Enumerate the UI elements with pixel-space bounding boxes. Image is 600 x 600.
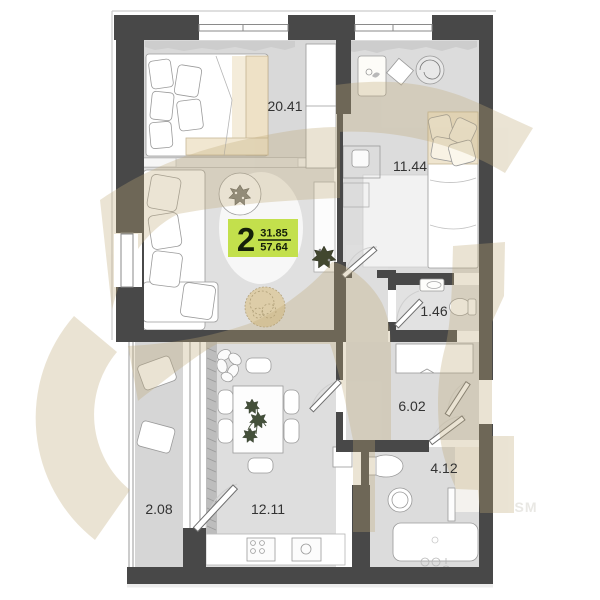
svg-text:6.02: 6.02 bbox=[398, 398, 425, 414]
svg-text:1.46: 1.46 bbox=[420, 303, 447, 319]
svg-text:31.85: 31.85 bbox=[260, 228, 288, 240]
svg-text:4.12: 4.12 bbox=[430, 460, 457, 476]
svg-text:12.11: 12.11 bbox=[251, 501, 285, 517]
svg-text:2: 2 bbox=[237, 221, 255, 258]
svg-text:20.41: 20.41 bbox=[267, 98, 302, 114]
svg-text:11.44: 11.44 bbox=[393, 158, 427, 174]
svg-text:57.64: 57.64 bbox=[260, 242, 288, 254]
svg-text:2.08: 2.08 bbox=[145, 501, 172, 517]
svg-text:SM: SM bbox=[515, 499, 538, 515]
